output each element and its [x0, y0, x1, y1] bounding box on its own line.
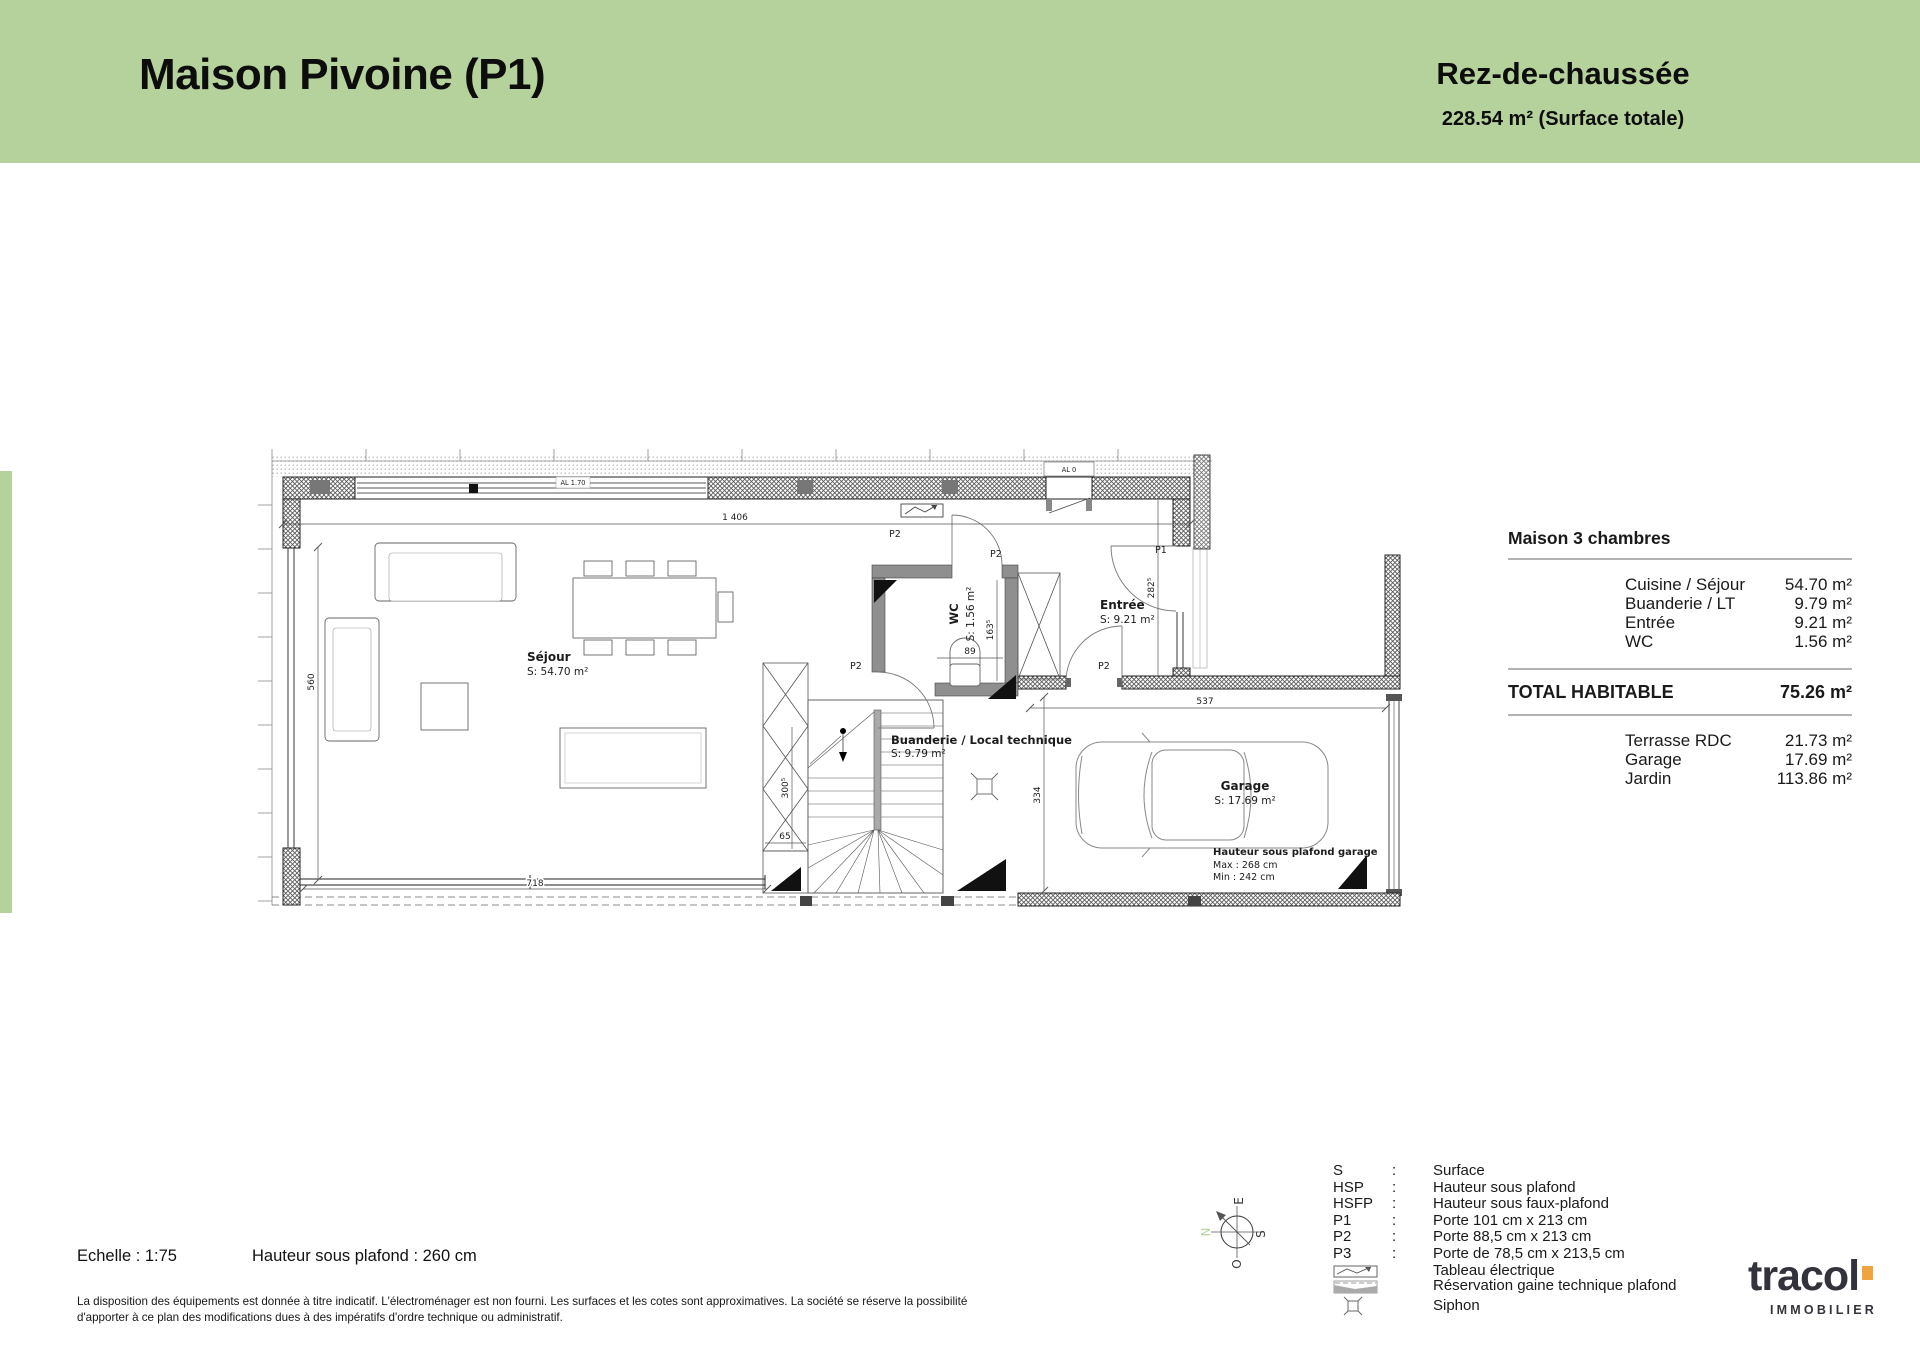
scale-note: Echelle : 1:75 — [77, 1247, 177, 1266]
legend-def: Porte de 78,5 cm x 213,5 cm — [1433, 1246, 1677, 1263]
total-row: TOTAL HABITABLE 75.26 m² — [1508, 682, 1852, 702]
dim-65: 65 — [779, 832, 790, 842]
car — [1076, 733, 1328, 857]
room-wc-area: S: 1.56 m² — [965, 587, 977, 642]
door-label-p2-a: P2 — [889, 529, 901, 540]
dim-163: 163⁵ — [986, 619, 996, 640]
legend-row: P3 : Porte de 78,5 cm x 213,5 cm — [1333, 1246, 1677, 1263]
dim-560: 560 — [307, 673, 317, 690]
legend-def: Porte 88,5 cm x 213 cm — [1433, 1229, 1677, 1246]
legend-def: Tableau électrique — [1433, 1263, 1677, 1278]
ceiling-height-note: Hauteur sous plafond : 260 cm — [252, 1247, 477, 1266]
legend-row: P1 : Porte 101 cm x 213 cm — [1333, 1213, 1677, 1230]
legend-def: Siphon — [1433, 1298, 1677, 1313]
legend-row: S : Surface — [1333, 1163, 1677, 1180]
row-label: WC — [1625, 632, 1653, 651]
disclaimer-line2: d'apporter à ce plan des modifications d… — [77, 1311, 563, 1324]
legend-def: Hauteur sous plafond — [1433, 1180, 1677, 1197]
dim-1406: 1 406 — [722, 513, 748, 523]
stairs — [808, 700, 943, 893]
compass-n: N — [1199, 1228, 1213, 1237]
reservation-gaine-icon — [1333, 1279, 1379, 1294]
row-value: 54.70 m² — [1785, 575, 1852, 594]
table-row: WC 1.56 m² — [1508, 632, 1852, 651]
room-entree: Entrée — [1100, 598, 1145, 612]
tableau-electrique-icon — [1333, 1264, 1379, 1278]
room-wc: WC — [947, 603, 961, 624]
room-sejour-area: S: 54.70 m² — [527, 666, 588, 678]
legend-def: Hauteur sous faux-plafond — [1433, 1196, 1677, 1213]
row-label: Cuisine / Séjour — [1625, 575, 1745, 594]
extra-rows: Terrasse RDC 21.73 m² Garage 17.69 m² Ja… — [1508, 731, 1852, 788]
row-value: 113.86 m² — [1777, 769, 1852, 788]
garage-ceiling-min: Min : 242 cm — [1213, 872, 1275, 883]
row-value: 1.56 m² — [1794, 632, 1852, 651]
row-label: Entrée — [1625, 613, 1675, 632]
dim-282: 282⁵ — [1147, 577, 1157, 598]
row-value: 21.73 m² — [1785, 731, 1852, 750]
legend-colon: : — [1392, 1246, 1433, 1263]
door-label-p2-c: P2 — [850, 661, 862, 672]
table-row: Entrée 9.21 m² — [1508, 613, 1852, 632]
legend-abbr: HSFP — [1333, 1196, 1392, 1213]
room-sejour: Séjour — [527, 650, 571, 664]
legend-def: Surface — [1433, 1163, 1677, 1180]
door-label-p1: P1 — [1155, 545, 1167, 556]
door-label-p2-d: P2 — [1098, 661, 1110, 672]
table-row: Garage 17.69 m² — [1508, 750, 1852, 769]
compass-e: E — [1232, 1197, 1246, 1205]
garage-ceiling-max: Max : 268 cm — [1213, 860, 1278, 871]
garage-ceiling-title: Hauteur sous plafond garage — [1213, 847, 1378, 858]
row-label: Jardin — [1625, 769, 1671, 788]
row-label: Terrasse RDC — [1625, 731, 1732, 750]
total-value: 75.26 m² — [1780, 682, 1852, 702]
dim-334: 334 — [1033, 786, 1043, 803]
disclaimer-line1: La disposition des équipements est donné… — [77, 1295, 967, 1308]
legend-symbol-row: Réservation gaine technique plafond — [1333, 1278, 1677, 1294]
room-buanderie-area: S: 9.79 m² — [891, 748, 946, 760]
legend-colon: : — [1392, 1163, 1433, 1180]
compass-icon: N E S O — [1195, 1192, 1285, 1277]
room-buanderie: Buanderie / Local technique — [891, 733, 1072, 747]
compass-o: O — [1230, 1259, 1244, 1268]
table-row: Buanderie / LT 9.79 m² — [1508, 594, 1852, 613]
legend-row: HSP : Hauteur sous plafond — [1333, 1180, 1677, 1197]
legend-row: P2 : Porte 88,5 cm x 213 cm — [1333, 1229, 1677, 1246]
window-label-al0: AL 0 — [1062, 466, 1076, 474]
row-value: 17.69 m² — [1785, 750, 1852, 769]
compass-s: S — [1254, 1230, 1268, 1238]
surface-table: Maison 3 chambres Cuisine / Séjour 54.70… — [1508, 528, 1852, 788]
window-label-al170: AL 1.70 — [561, 479, 586, 487]
legend-def: Réservation gaine technique plafond — [1433, 1278, 1677, 1293]
legend-abbr: S — [1333, 1163, 1392, 1180]
logo-accent-square — [1862, 1266, 1873, 1280]
legend-abbr: P3 — [1333, 1246, 1392, 1263]
legend-colon: : — [1392, 1196, 1433, 1213]
table-row: Jardin 113.86 m² — [1508, 769, 1852, 788]
siphon-icon — [1333, 1295, 1379, 1317]
legend-abbr: P2 — [1333, 1229, 1392, 1246]
room-entree-area: S: 9.21 m² — [1100, 614, 1155, 626]
dim-89: 89 — [964, 647, 976, 657]
company-logo-sub: IMMOBILIER — [1770, 1303, 1877, 1317]
dim-300: 300⁵ — [781, 777, 791, 798]
company-logo: tracol — [1748, 1252, 1859, 1301]
door-label-p2-b: P2 — [990, 549, 1002, 560]
room-garage-area: S: 17.69 m² — [1214, 795, 1275, 807]
legend-colon: : — [1392, 1229, 1433, 1246]
legend-symbol-row: Siphon — [1333, 1294, 1677, 1317]
dim-718: 718 — [526, 879, 543, 889]
row-label: Garage — [1625, 750, 1682, 769]
legend-def: Porte 101 cm x 213 cm — [1433, 1213, 1677, 1230]
legend-abbr: HSP — [1333, 1180, 1392, 1197]
legend-colon: : — [1392, 1213, 1433, 1230]
row-label: Buanderie / LT — [1625, 594, 1735, 613]
row-value: 9.79 m² — [1794, 594, 1852, 613]
table-row: Cuisine / Séjour 54.70 m² — [1508, 575, 1852, 594]
legend-abbr: P1 — [1333, 1213, 1392, 1230]
row-value: 9.21 m² — [1794, 613, 1852, 632]
total-label: TOTAL HABITABLE — [1508, 682, 1674, 702]
legend-symbol-row: Tableau électrique — [1333, 1263, 1677, 1278]
legend-row: HSFP : Hauteur sous faux-plafond — [1333, 1196, 1677, 1213]
table-row: Terrasse RDC 21.73 m² — [1508, 731, 1852, 750]
dim-537: 537 — [1196, 697, 1213, 707]
legend: S : Surface HSP : Hauteur sous plafond H… — [1333, 1163, 1677, 1317]
legend-colon: : — [1392, 1180, 1433, 1197]
surface-rows: Cuisine / Séjour 54.70 m² Buanderie / LT… — [1508, 575, 1852, 651]
surface-table-title: Maison 3 chambres — [1508, 528, 1852, 549]
room-garage: Garage — [1221, 779, 1270, 793]
